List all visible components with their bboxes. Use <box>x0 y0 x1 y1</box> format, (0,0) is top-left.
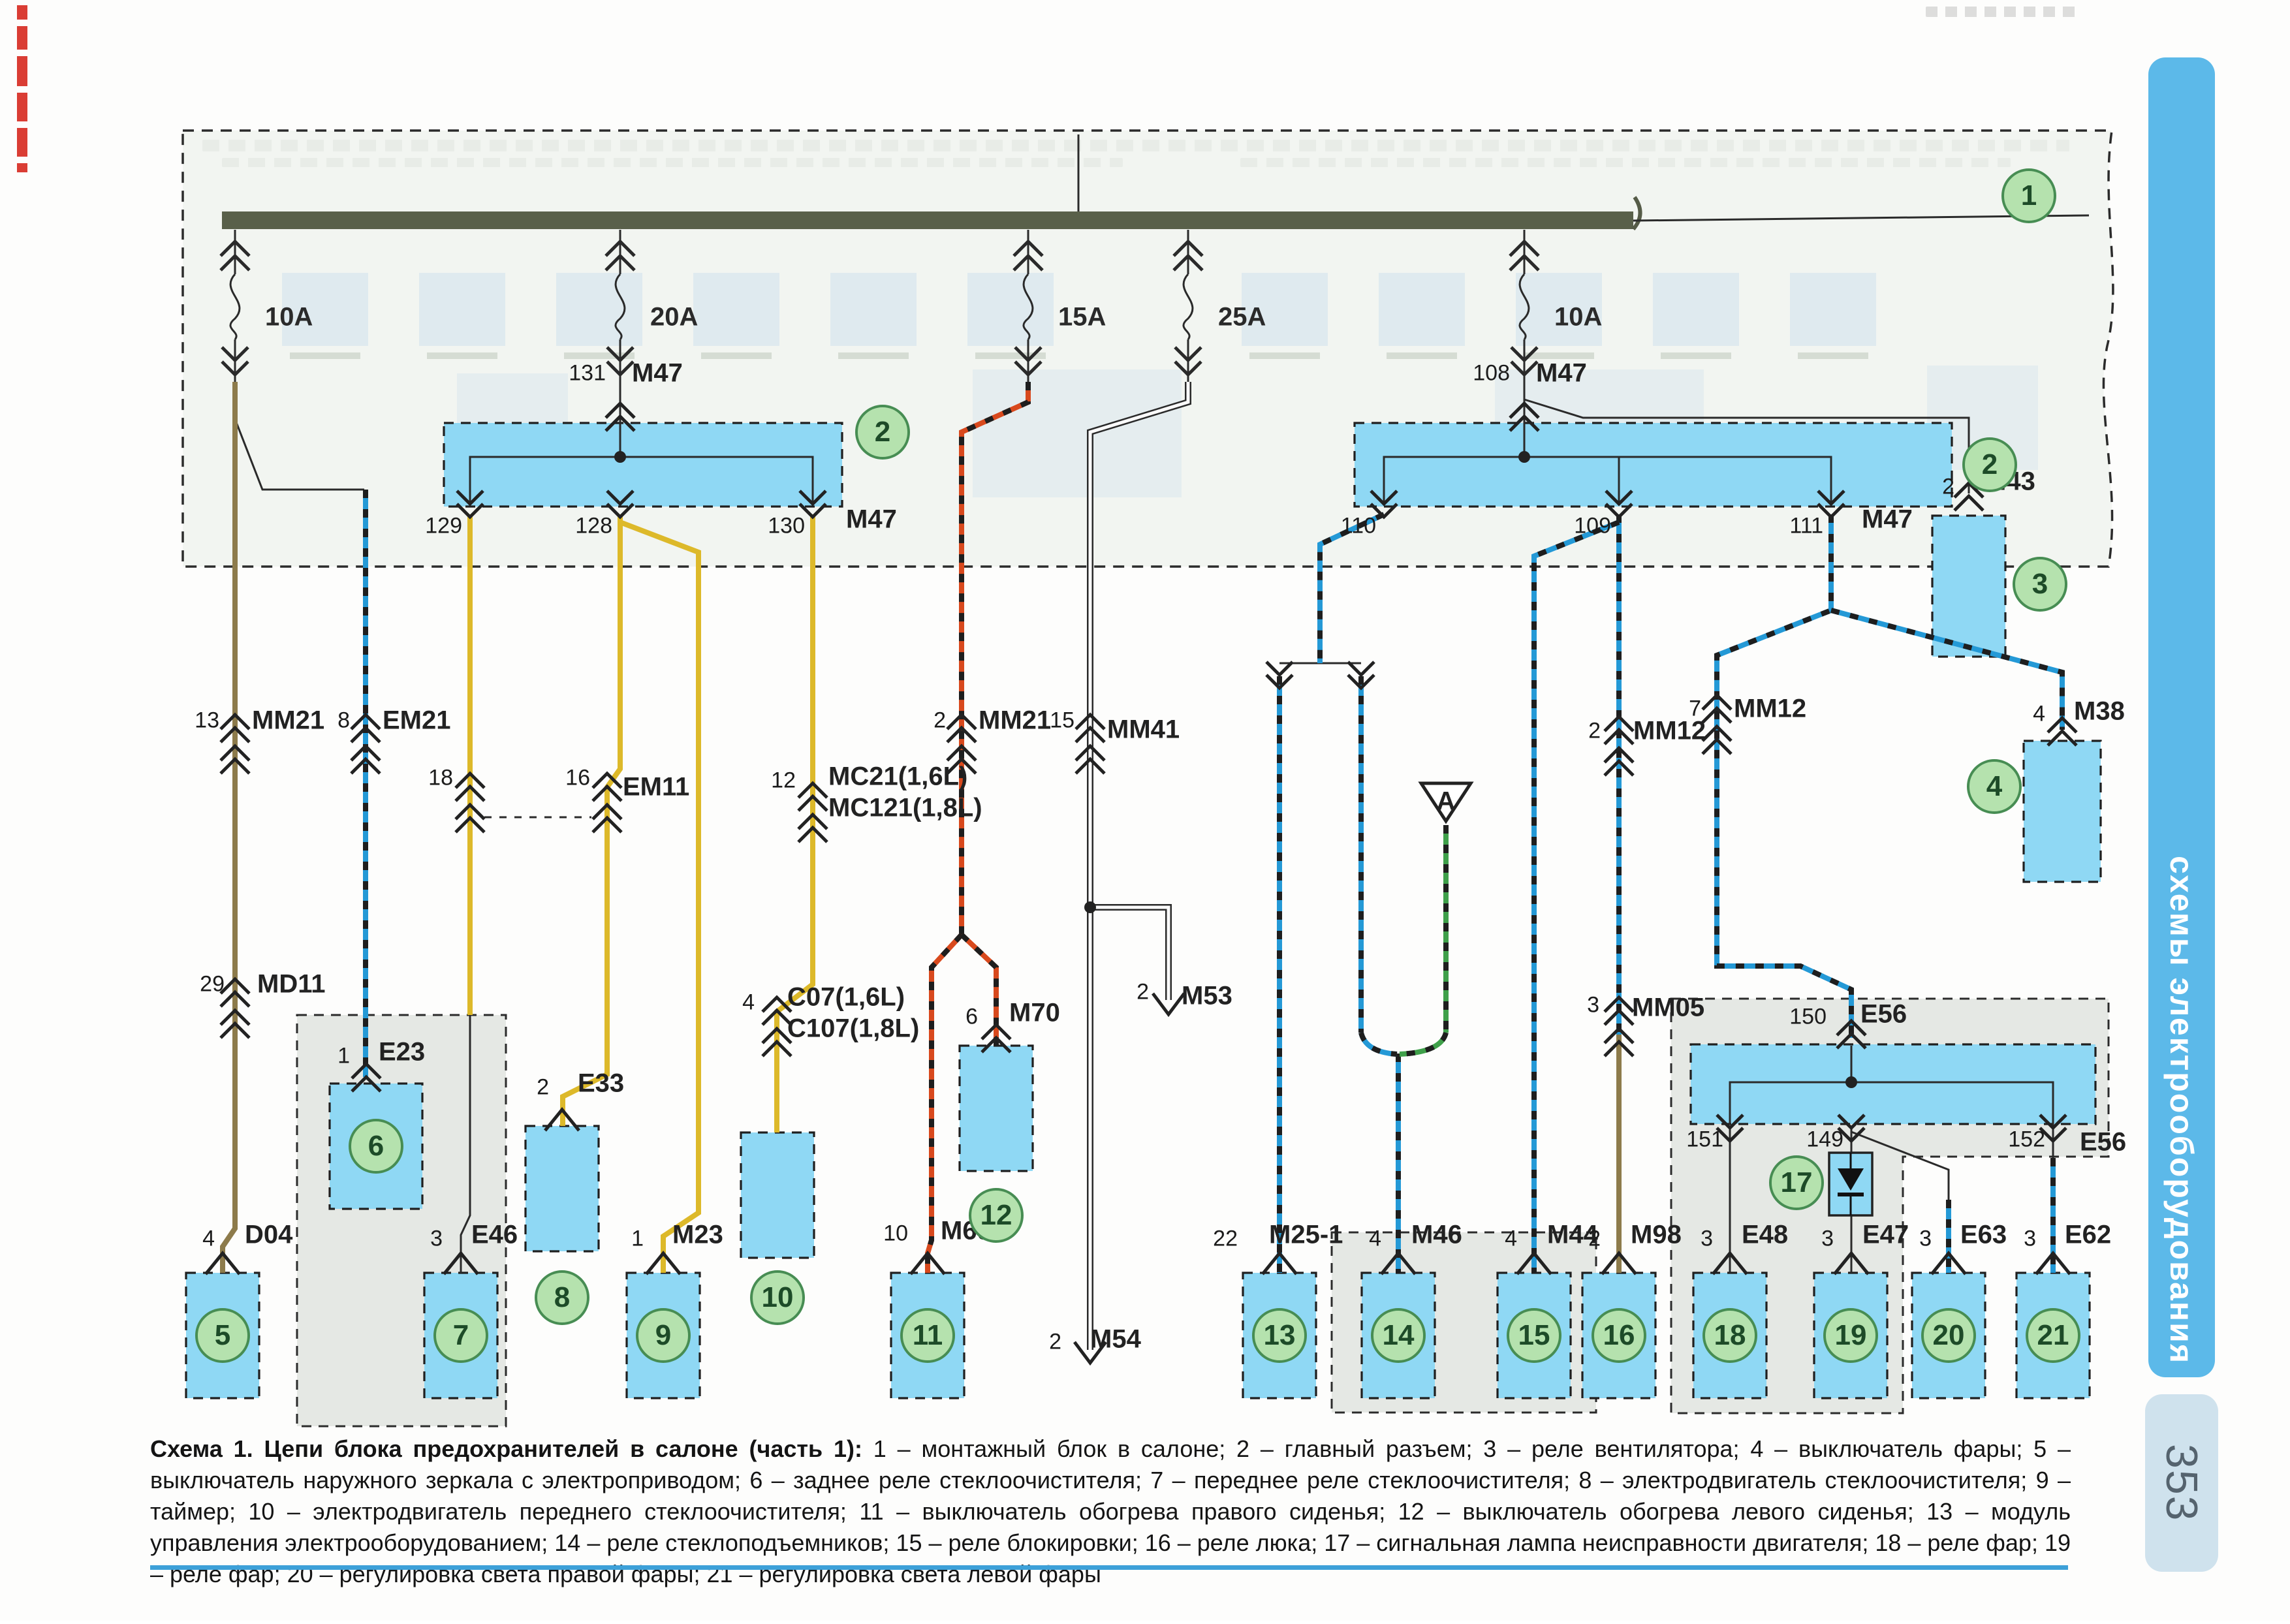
wiring-diagram <box>0 0 2290 1621</box>
chapter-sidebar: схемы электрооборудования <box>2148 57 2215 1377</box>
page-number-tab: 353 <box>2145 1394 2218 1572</box>
caption-lead: Схема 1. Цепи блока предохранителей в са… <box>150 1435 862 1462</box>
caption-rule <box>150 1565 2068 1570</box>
page-number: 353 <box>2156 1444 2207 1522</box>
manual-page: 131M47108M472M43129128130M47110109111M47… <box>0 0 2290 1621</box>
chapter-title: схемы электрооборудования <box>2163 856 2201 1364</box>
